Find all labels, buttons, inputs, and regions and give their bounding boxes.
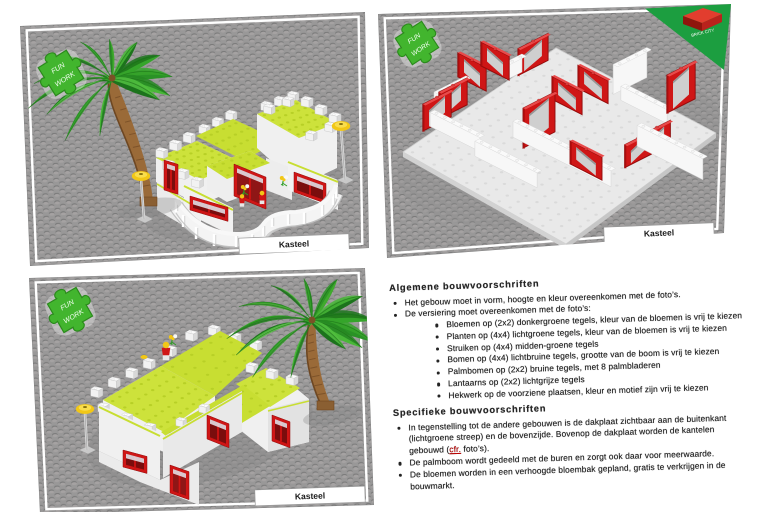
svg-text:Kasteel: Kasteel: [644, 227, 675, 238]
svg-text:Kasteel: Kasteel: [279, 238, 310, 249]
svg-text:Kasteel: Kasteel: [295, 490, 326, 501]
